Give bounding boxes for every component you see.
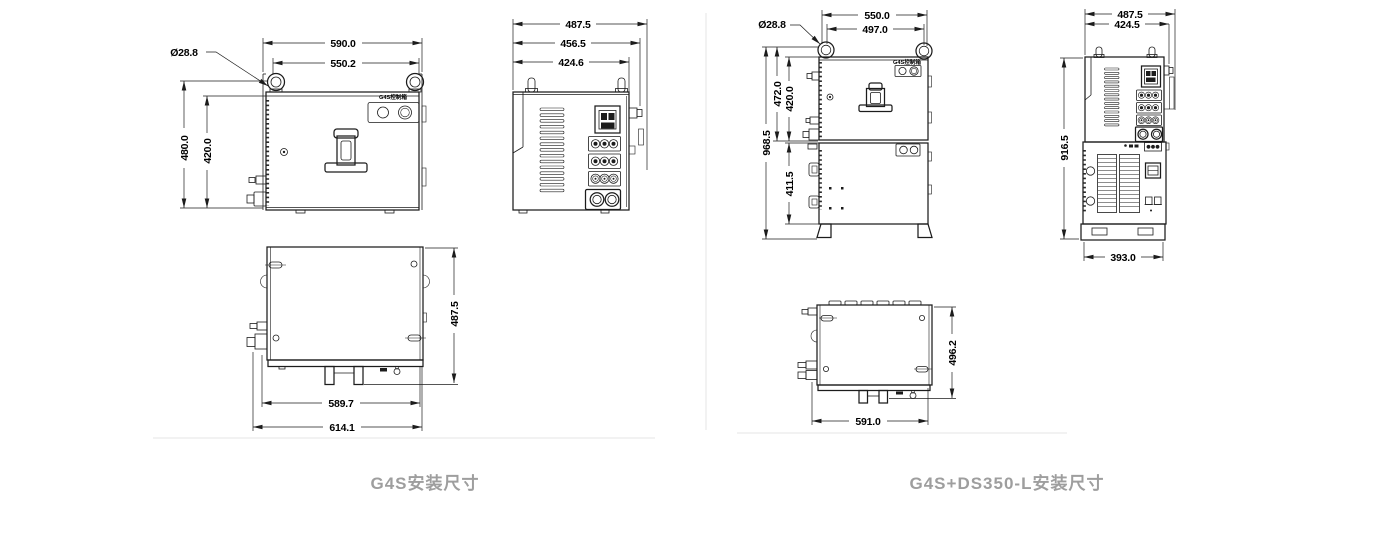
dim-label: 589.7 (328, 398, 354, 410)
dim-label: 916.5 (1059, 135, 1071, 161)
dim-label: 424.5 (1114, 19, 1140, 31)
g4s-bottom-view: 487.5 589.7 614.1 (247, 247, 461, 434)
side-connectors (247, 322, 267, 349)
dim-label: 591.0 (855, 416, 881, 428)
dim-label: 496.2 (947, 340, 959, 366)
box-label: G4S控制箱 (893, 58, 921, 66)
g4s-ds350-bottom-view: 496.2 591.0 (798, 301, 959, 428)
box-label: G4S控制箱 (379, 93, 407, 101)
dim-label: 480.0 (179, 135, 191, 161)
handle (859, 83, 892, 112)
connector-row (589, 137, 621, 152)
vent-grille (1105, 68, 1120, 126)
page: G4S控制箱 590.0 (0, 0, 1400, 533)
dimensions: 487.5 424.5 916.5 393.0 (1058, 8, 1175, 264)
dimension-drawings: G4S控制箱 590.0 (0, 0, 1400, 533)
dimensions: 487.5 456.5 424.6 (513, 18, 647, 170)
dim-label: 968.5 (761, 130, 773, 156)
caption-g4s: G4S安装尺寸 (255, 469, 595, 494)
display-panel (1142, 66, 1161, 87)
dim-label: 590.0 (330, 38, 356, 50)
connector-block (1145, 143, 1162, 152)
connector-row (589, 172, 621, 187)
dim-label: 487.5 (565, 19, 591, 31)
dimensions: 496.2 591.0 (812, 307, 959, 428)
dimensions: 487.5 589.7 614.1 (253, 248, 461, 434)
g4s-front-view: G4S控制箱 590.0 (170, 37, 426, 213)
dim-label: 411.5 (784, 171, 796, 196)
power-connectors (586, 190, 621, 210)
caption-g4s-ds350: G4S+DS350-L安装尺寸 (837, 469, 1177, 494)
connector-row (1137, 115, 1162, 126)
eye-bolt (407, 74, 424, 93)
dim-label: 550.2 (330, 58, 356, 70)
dim-label: 550.0 (864, 10, 890, 22)
dim-label: 420.0 (784, 86, 796, 112)
eye-bolt (268, 74, 285, 93)
dim-label: 456.5 (560, 38, 586, 50)
connector-row (1137, 90, 1162, 101)
dim-label: 614.1 (329, 422, 355, 434)
vent-grille (1098, 155, 1140, 213)
dim-label: 497.0 (862, 24, 888, 36)
connector-row (589, 154, 621, 169)
g4s-ds350-front-view: G4S控制箱 (758, 9, 932, 239)
g4s-side-view: 487.5 456.5 424.6 (513, 18, 647, 213)
dim-label: 472.0 (772, 81, 784, 107)
dim-label: 420.0 (202, 138, 214, 164)
dim-label: Ø28.8 (170, 47, 198, 59)
card-borders (153, 13, 1067, 438)
g4s-ds350-side-view: 487.5 424.5 916.5 393.0 (1058, 8, 1175, 264)
dim-label: Ø28.8 (758, 19, 786, 31)
dim-label: 393.0 (1110, 252, 1136, 264)
dim-label: 424.6 (558, 57, 584, 69)
terminal-block (1146, 163, 1161, 178)
handle (325, 129, 367, 172)
display-panel (595, 106, 620, 133)
dim-label: 487.5 (449, 301, 461, 327)
dimensions: 550.0 497.0 Ø28.8 968.5 472.0 420.0 (758, 9, 927, 239)
power-connectors (1136, 127, 1163, 142)
connector-row (1137, 103, 1162, 114)
vent-grille (540, 108, 564, 192)
